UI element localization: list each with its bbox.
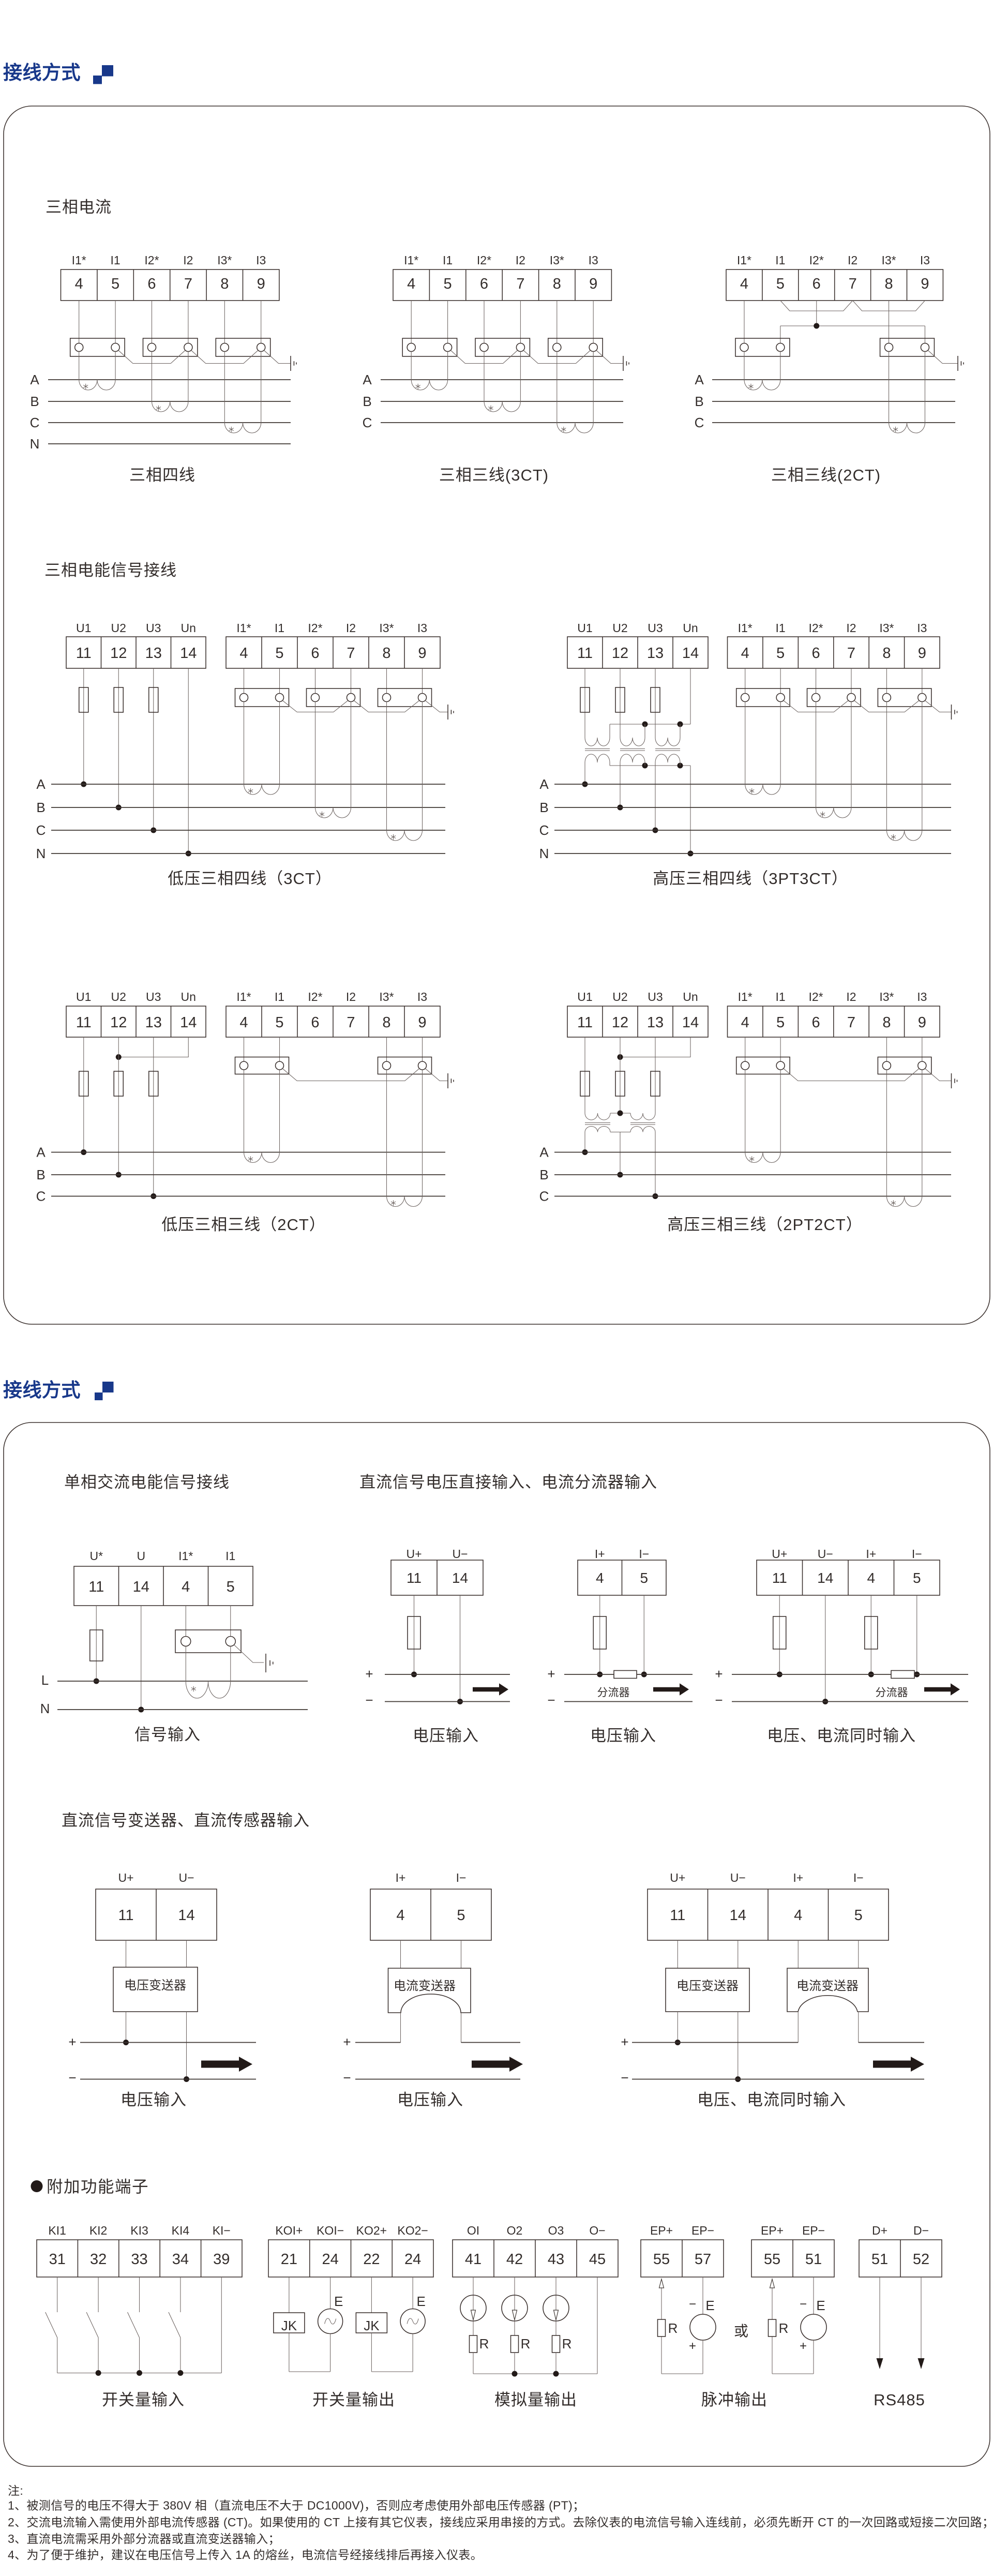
svg-text:接线方式: 接线方式 xyxy=(3,62,81,83)
svg-text:直流信号变送器、直流传感器输入: 直流信号变送器、直流传感器输入 xyxy=(62,1811,310,1830)
svg-text:+: + xyxy=(715,1666,723,1682)
svg-text:脉冲输出: 脉冲输出 xyxy=(701,2391,768,2409)
svg-text:U3: U3 xyxy=(648,621,663,635)
svg-text:U2: U2 xyxy=(111,621,126,635)
svg-text:KO2−: KO2− xyxy=(397,2224,428,2237)
svg-text:C: C xyxy=(695,415,704,430)
svg-text:B: B xyxy=(539,800,548,815)
svg-text:+: + xyxy=(343,2034,351,2050)
svg-text:32: 32 xyxy=(90,2251,107,2268)
svg-text:4: 4 xyxy=(740,276,748,292)
svg-text:U3: U3 xyxy=(146,990,161,1004)
svg-text:8: 8 xyxy=(220,276,229,292)
svg-text:8: 8 xyxy=(382,1014,390,1031)
svg-text:RS485: RS485 xyxy=(874,2391,925,2409)
svg-text:−: − xyxy=(689,2297,696,2311)
svg-text:4: 4 xyxy=(396,1907,404,1924)
svg-text:14: 14 xyxy=(817,1570,833,1586)
svg-text:−: − xyxy=(715,1693,723,1708)
svg-text:U+: U+ xyxy=(772,1547,787,1561)
svg-text:I2: I2 xyxy=(846,621,856,635)
svg-text:11: 11 xyxy=(577,1014,593,1031)
svg-text:9: 9 xyxy=(918,645,926,662)
svg-text:13: 13 xyxy=(647,1014,664,1031)
svg-text:5: 5 xyxy=(111,276,119,292)
svg-text:I3*: I3* xyxy=(217,253,232,267)
svg-text:11: 11 xyxy=(772,1570,787,1586)
svg-text:电流变送器: 电流变送器 xyxy=(796,1979,859,1993)
svg-text:I2*: I2* xyxy=(308,621,322,635)
svg-text:E: E xyxy=(816,2298,825,2313)
svg-text:U*: U* xyxy=(89,1549,103,1563)
svg-text:4、为了便于维护，建议在电压信号上传入 1A 的熔丝，电流信: 4、为了便于维护，建议在电压信号上传入 1A 的熔丝，电流信号经接线排后再接入仪… xyxy=(8,2548,483,2562)
svg-text:5: 5 xyxy=(227,1579,235,1595)
svg-text:U: U xyxy=(137,1549,145,1563)
svg-text:电压变送器: 电压变送器 xyxy=(124,1979,186,1993)
svg-text:3、直流电流需采用外部分流器或直流变送器输入；: 3、直流电流需采用外部分流器或直流变送器输入； xyxy=(8,2532,280,2545)
svg-text:I2: I2 xyxy=(516,253,525,267)
svg-text:51: 51 xyxy=(805,2251,822,2268)
svg-text:JK: JK xyxy=(281,2318,297,2333)
svg-text:4: 4 xyxy=(182,1579,190,1595)
svg-text:低压三相四线（3CT）: 低压三相四线（3CT） xyxy=(168,870,332,888)
svg-text:E: E xyxy=(705,2298,714,2313)
svg-text:U1: U1 xyxy=(577,990,592,1004)
svg-text:EP−: EP− xyxy=(802,2224,825,2237)
svg-text:5: 5 xyxy=(913,1570,921,1586)
svg-text:55: 55 xyxy=(764,2251,780,2268)
svg-text:KI1: KI1 xyxy=(48,2224,66,2237)
svg-text:B: B xyxy=(36,800,45,815)
svg-text:6: 6 xyxy=(813,276,821,292)
svg-text:电压输入: 电压输入 xyxy=(121,2091,187,2109)
svg-text:C: C xyxy=(363,415,372,430)
svg-text:三相三线(2CT): 三相三线(2CT) xyxy=(771,466,881,484)
svg-text:4: 4 xyxy=(794,1907,802,1924)
svg-text:D−: D− xyxy=(913,2224,929,2237)
svg-text:Un: Un xyxy=(181,621,196,635)
svg-text:4: 4 xyxy=(239,645,248,662)
svg-text:11: 11 xyxy=(407,1570,422,1586)
svg-text:A: A xyxy=(363,372,372,387)
svg-text:开关量输出: 开关量输出 xyxy=(312,2391,395,2409)
svg-text:11: 11 xyxy=(670,1907,685,1924)
svg-text:三相三线(3CT): 三相三线(3CT) xyxy=(439,466,549,484)
svg-text:I2*: I2* xyxy=(808,621,823,635)
svg-text:或: 或 xyxy=(734,2323,748,2339)
svg-text:4: 4 xyxy=(239,1014,248,1031)
svg-text:单相交流电能信号接线: 单相交流电能信号接线 xyxy=(64,1473,230,1491)
svg-text:I+: I+ xyxy=(595,1547,605,1561)
svg-text:OI: OI xyxy=(467,2224,479,2237)
svg-text:模拟量输出: 模拟量输出 xyxy=(494,2391,577,2409)
svg-text:电压输入: 电压输入 xyxy=(413,1727,479,1745)
svg-text:14: 14 xyxy=(133,1579,149,1595)
svg-text:I3*: I3* xyxy=(879,990,894,1004)
svg-text:11: 11 xyxy=(118,1907,133,1924)
svg-text:6: 6 xyxy=(147,276,156,292)
svg-text:+: + xyxy=(621,2034,628,2050)
svg-text:A: A xyxy=(695,372,704,387)
svg-text:14: 14 xyxy=(682,645,699,662)
svg-text:I1*: I1* xyxy=(737,253,751,267)
svg-text:A: A xyxy=(36,776,46,792)
svg-text:I1*: I1* xyxy=(738,621,753,635)
svg-text:N: N xyxy=(36,846,46,861)
svg-text:B: B xyxy=(539,1167,548,1182)
svg-text:−: − xyxy=(621,2070,628,2086)
svg-text:EP+: EP+ xyxy=(761,2224,784,2237)
svg-text:I3*: I3* xyxy=(379,621,394,635)
svg-text:I2: I2 xyxy=(846,990,856,1004)
svg-text:低压三相三线（2CT）: 低压三相三线（2CT） xyxy=(161,1216,326,1234)
svg-text:L: L xyxy=(41,1672,49,1688)
svg-text:8: 8 xyxy=(882,645,891,662)
svg-text:JK: JK xyxy=(364,2318,380,2333)
svg-text:I1: I1 xyxy=(225,1549,235,1563)
svg-text:I2: I2 xyxy=(183,253,193,267)
svg-text:1、被测信号的电压不得大于 380V 相（直流电压不大于 D: 1、被测信号的电压不得大于 380V 相（直流电压不大于 DC1000V)，否则… xyxy=(8,2499,584,2512)
svg-text:C: C xyxy=(539,822,549,838)
svg-text:7: 7 xyxy=(347,645,355,662)
svg-text:A: A xyxy=(539,776,549,792)
svg-text:I−: I− xyxy=(912,1547,922,1561)
svg-text:5: 5 xyxy=(854,1907,863,1924)
svg-text:I+: I+ xyxy=(866,1547,876,1561)
svg-text:I+: I+ xyxy=(396,1871,406,1884)
svg-text:O−: O− xyxy=(589,2224,605,2237)
svg-text:I−: I− xyxy=(639,1547,649,1561)
svg-text:5: 5 xyxy=(457,1907,465,1924)
svg-text:43: 43 xyxy=(548,2251,564,2268)
svg-text:三相电能信号接线: 三相电能信号接线 xyxy=(44,561,177,579)
svg-text:5: 5 xyxy=(776,1014,785,1031)
svg-text:8: 8 xyxy=(553,276,561,292)
svg-text:5: 5 xyxy=(776,645,785,662)
svg-text:N: N xyxy=(30,436,40,452)
svg-text:U2: U2 xyxy=(612,990,627,1004)
svg-text:I2*: I2* xyxy=(144,253,159,267)
svg-text:I2*: I2* xyxy=(477,253,491,267)
svg-text:I1: I1 xyxy=(275,621,284,635)
svg-text:24: 24 xyxy=(404,2251,421,2268)
svg-text:R: R xyxy=(521,2336,531,2352)
svg-text:9: 9 xyxy=(418,1014,426,1031)
svg-text:I−: I− xyxy=(456,1871,467,1884)
svg-text:B: B xyxy=(30,394,39,409)
svg-text:4: 4 xyxy=(596,1570,604,1586)
svg-text:−: − xyxy=(365,1693,373,1708)
svg-text:34: 34 xyxy=(172,2251,189,2268)
svg-text:I1: I1 xyxy=(776,990,786,1004)
svg-text:12: 12 xyxy=(612,1014,628,1031)
svg-text:电压输入: 电压输入 xyxy=(590,1727,656,1745)
svg-text:KI−: KI− xyxy=(213,2224,231,2237)
svg-text:5: 5 xyxy=(275,1014,283,1031)
svg-text:9: 9 xyxy=(921,276,929,292)
svg-text:高压三相三线（2PT2CT）: 高压三相三线（2PT2CT） xyxy=(667,1216,862,1234)
svg-text:4: 4 xyxy=(867,1570,875,1586)
svg-text:EP−: EP− xyxy=(691,2224,714,2237)
svg-text:4: 4 xyxy=(741,1014,749,1031)
svg-text:5: 5 xyxy=(640,1570,648,1586)
svg-text:A: A xyxy=(36,1145,46,1160)
svg-text:I3: I3 xyxy=(417,621,427,635)
svg-text:51: 51 xyxy=(871,2251,888,2268)
svg-text:U−: U− xyxy=(818,1547,833,1561)
svg-text:I3*: I3* xyxy=(550,253,564,267)
svg-text:电流变送器: 电流变送器 xyxy=(394,1979,456,1993)
svg-text:电压、电流同时输入: 电压、电流同时输入 xyxy=(767,1727,916,1745)
svg-text:I−: I− xyxy=(853,1871,864,1884)
svg-text:EP+: EP+ xyxy=(650,2224,673,2237)
svg-text:33: 33 xyxy=(131,2251,147,2268)
svg-text:I1*: I1* xyxy=(178,1549,193,1563)
svg-text:I1*: I1* xyxy=(738,990,753,1004)
svg-text:−: − xyxy=(800,2297,807,2311)
svg-text:电压输入: 电压输入 xyxy=(397,2091,463,2109)
svg-text:I1*: I1* xyxy=(236,990,251,1004)
svg-text:U+: U+ xyxy=(406,1547,422,1561)
svg-text:31: 31 xyxy=(49,2251,66,2268)
svg-text:8: 8 xyxy=(882,1014,891,1031)
svg-text:R: R xyxy=(668,2320,678,2336)
svg-text:9: 9 xyxy=(918,1014,926,1031)
svg-text:I1: I1 xyxy=(275,990,284,1004)
svg-text:7: 7 xyxy=(184,276,192,292)
svg-text:I1: I1 xyxy=(443,253,453,267)
svg-text:B: B xyxy=(363,394,371,409)
svg-text:I3: I3 xyxy=(917,621,927,635)
svg-text:9: 9 xyxy=(589,276,597,292)
svg-text:R: R xyxy=(779,2320,789,2336)
svg-text:B: B xyxy=(695,394,703,409)
svg-text:附加功能端子: 附加功能端子 xyxy=(47,2177,149,2196)
svg-text:电压、电流同时输入: 电压、电流同时输入 xyxy=(697,2091,846,2109)
svg-text:14: 14 xyxy=(180,645,197,662)
svg-text:14: 14 xyxy=(180,1014,197,1031)
svg-text:接线方式: 接线方式 xyxy=(3,1380,81,1401)
svg-text:U1: U1 xyxy=(577,621,592,635)
svg-text:−: − xyxy=(68,2070,76,2086)
svg-text:7: 7 xyxy=(347,1014,355,1031)
svg-text:A: A xyxy=(539,1145,549,1160)
svg-text:三相电流: 三相电流 xyxy=(46,198,112,216)
svg-text:I2*: I2* xyxy=(808,990,823,1004)
svg-text:Un: Un xyxy=(683,990,698,1004)
svg-text:开关量输入: 开关量输入 xyxy=(102,2391,185,2409)
svg-text:6: 6 xyxy=(480,276,488,292)
svg-text:U−: U− xyxy=(730,1871,746,1884)
svg-text:分流器: 分流器 xyxy=(597,1687,630,1699)
svg-text:注:: 注: xyxy=(8,2484,23,2497)
svg-text:R: R xyxy=(562,2336,572,2352)
svg-text:45: 45 xyxy=(589,2251,606,2268)
svg-text:12: 12 xyxy=(110,645,127,662)
svg-text:Un: Un xyxy=(683,621,698,635)
svg-text:I3*: I3* xyxy=(379,990,394,1004)
svg-text:13: 13 xyxy=(145,645,162,662)
svg-text:I1: I1 xyxy=(775,253,785,267)
svg-text:U1: U1 xyxy=(76,990,91,1004)
svg-text:KO2+: KO2+ xyxy=(356,2224,387,2237)
svg-text:U3: U3 xyxy=(146,621,161,635)
svg-text:21: 21 xyxy=(281,2251,297,2268)
svg-text:+: + xyxy=(365,1666,373,1682)
svg-text:U+: U+ xyxy=(118,1871,133,1884)
svg-text:I3: I3 xyxy=(417,990,427,1004)
svg-text:D+: D+ xyxy=(872,2224,887,2237)
svg-text:57: 57 xyxy=(695,2251,711,2268)
svg-text:−: − xyxy=(343,2070,351,2086)
svg-text:41: 41 xyxy=(465,2251,482,2268)
svg-text:I3: I3 xyxy=(920,253,930,267)
svg-text:7: 7 xyxy=(847,645,855,662)
svg-text:KOI−: KOI− xyxy=(317,2224,344,2237)
svg-text:I2: I2 xyxy=(346,990,356,1004)
svg-text:52: 52 xyxy=(913,2251,929,2268)
svg-text:I3*: I3* xyxy=(879,621,894,635)
svg-text:I3*: I3* xyxy=(881,253,896,267)
svg-text:KOI+: KOI+ xyxy=(275,2224,303,2237)
svg-text:11: 11 xyxy=(76,645,92,662)
svg-text:11: 11 xyxy=(76,1014,92,1031)
svg-text:C: C xyxy=(36,1189,46,1204)
svg-text:6: 6 xyxy=(811,645,820,662)
svg-text:13: 13 xyxy=(145,1014,162,1031)
svg-text:7: 7 xyxy=(847,1014,855,1031)
svg-text:U1: U1 xyxy=(76,621,91,635)
svg-text:7: 7 xyxy=(516,276,524,292)
svg-text:I1*: I1* xyxy=(236,621,251,635)
svg-text:9: 9 xyxy=(257,276,265,292)
svg-text:6: 6 xyxy=(811,1014,820,1031)
svg-text:KI4: KI4 xyxy=(172,2224,190,2237)
svg-text:E: E xyxy=(416,2294,425,2309)
svg-text:U3: U3 xyxy=(648,990,663,1004)
svg-text:5: 5 xyxy=(275,645,283,662)
svg-text:12: 12 xyxy=(612,645,628,662)
svg-text:+: + xyxy=(547,1666,555,1682)
svg-text:39: 39 xyxy=(213,2251,230,2268)
svg-text:I+: I+ xyxy=(793,1871,803,1884)
svg-text:14: 14 xyxy=(178,1907,194,1924)
svg-text:C: C xyxy=(30,415,40,430)
svg-text:14: 14 xyxy=(682,1014,699,1031)
svg-text:A: A xyxy=(30,372,39,387)
svg-text:6: 6 xyxy=(311,645,319,662)
svg-text:E: E xyxy=(334,2294,343,2309)
svg-text:C: C xyxy=(36,822,46,838)
svg-text:三相四线: 三相四线 xyxy=(129,466,195,484)
svg-text:12: 12 xyxy=(110,1014,127,1031)
svg-text:13: 13 xyxy=(647,645,664,662)
svg-text:C: C xyxy=(539,1189,549,1204)
svg-text:14: 14 xyxy=(452,1570,468,1586)
svg-text:U−: U− xyxy=(178,1871,194,1884)
svg-text:5: 5 xyxy=(444,276,452,292)
svg-text:I2*: I2* xyxy=(809,253,824,267)
svg-text:I3: I3 xyxy=(917,990,927,1004)
svg-text:5: 5 xyxy=(776,276,785,292)
svg-text:I1*: I1* xyxy=(72,253,86,267)
svg-text:I2*: I2* xyxy=(308,990,322,1004)
svg-text:+: + xyxy=(68,2034,76,2050)
svg-text:2、交流电流输入需使用外部电流传感器 (CT)。如果使用的: 2、交流电流输入需使用外部电流传感器 (CT)。如果使用的 CT 上接有其它仪表… xyxy=(8,2515,993,2529)
svg-text:4: 4 xyxy=(407,276,415,292)
svg-text:11: 11 xyxy=(577,645,593,662)
svg-text:I1: I1 xyxy=(111,253,121,267)
svg-text:分流器: 分流器 xyxy=(876,1687,908,1699)
svg-text:4: 4 xyxy=(75,276,83,292)
svg-text:B: B xyxy=(36,1167,45,1182)
svg-text:14: 14 xyxy=(730,1907,746,1924)
svg-text:Un: Un xyxy=(181,990,196,1004)
svg-text:9: 9 xyxy=(418,645,426,662)
svg-text:R: R xyxy=(479,2336,489,2352)
svg-text:直流信号电压直接输入、电流分流器输入: 直流信号电压直接输入、电流分流器输入 xyxy=(359,1473,657,1491)
svg-text:O3: O3 xyxy=(548,2224,564,2237)
svg-text:11: 11 xyxy=(88,1579,104,1595)
svg-text:6: 6 xyxy=(311,1014,319,1031)
svg-text:+: + xyxy=(689,2339,696,2353)
svg-text:U+: U+ xyxy=(670,1871,685,1884)
svg-text:高压三相四线（3PT3CT）: 高压三相四线（3PT3CT） xyxy=(653,870,848,888)
svg-text:I2: I2 xyxy=(346,621,356,635)
svg-text:22: 22 xyxy=(363,2251,380,2268)
svg-text:U2: U2 xyxy=(111,990,126,1004)
svg-text:U−: U− xyxy=(452,1547,468,1561)
svg-text:N: N xyxy=(40,1701,50,1716)
svg-text:U2: U2 xyxy=(612,621,627,635)
svg-text:KI3: KI3 xyxy=(130,2224,148,2237)
svg-text:信号输入: 信号输入 xyxy=(134,1726,201,1744)
svg-text:O2: O2 xyxy=(507,2224,523,2237)
svg-text:4: 4 xyxy=(741,645,749,662)
svg-text:8: 8 xyxy=(382,645,390,662)
svg-text:N: N xyxy=(539,846,549,861)
svg-text:24: 24 xyxy=(322,2251,338,2268)
svg-text:+: + xyxy=(800,2339,807,2353)
svg-text:42: 42 xyxy=(506,2251,523,2268)
svg-text:8: 8 xyxy=(884,276,893,292)
svg-text:−: − xyxy=(547,1693,555,1708)
svg-text:I1*: I1* xyxy=(404,253,418,267)
svg-text:I1: I1 xyxy=(776,621,786,635)
svg-text:7: 7 xyxy=(849,276,857,292)
svg-text:I3: I3 xyxy=(589,253,598,267)
svg-text:55: 55 xyxy=(653,2251,670,2268)
svg-text:I2: I2 xyxy=(848,253,857,267)
svg-text:电压变送器: 电压变送器 xyxy=(676,1979,739,1993)
svg-text:I3: I3 xyxy=(256,253,266,267)
svg-text:KI2: KI2 xyxy=(89,2224,108,2237)
